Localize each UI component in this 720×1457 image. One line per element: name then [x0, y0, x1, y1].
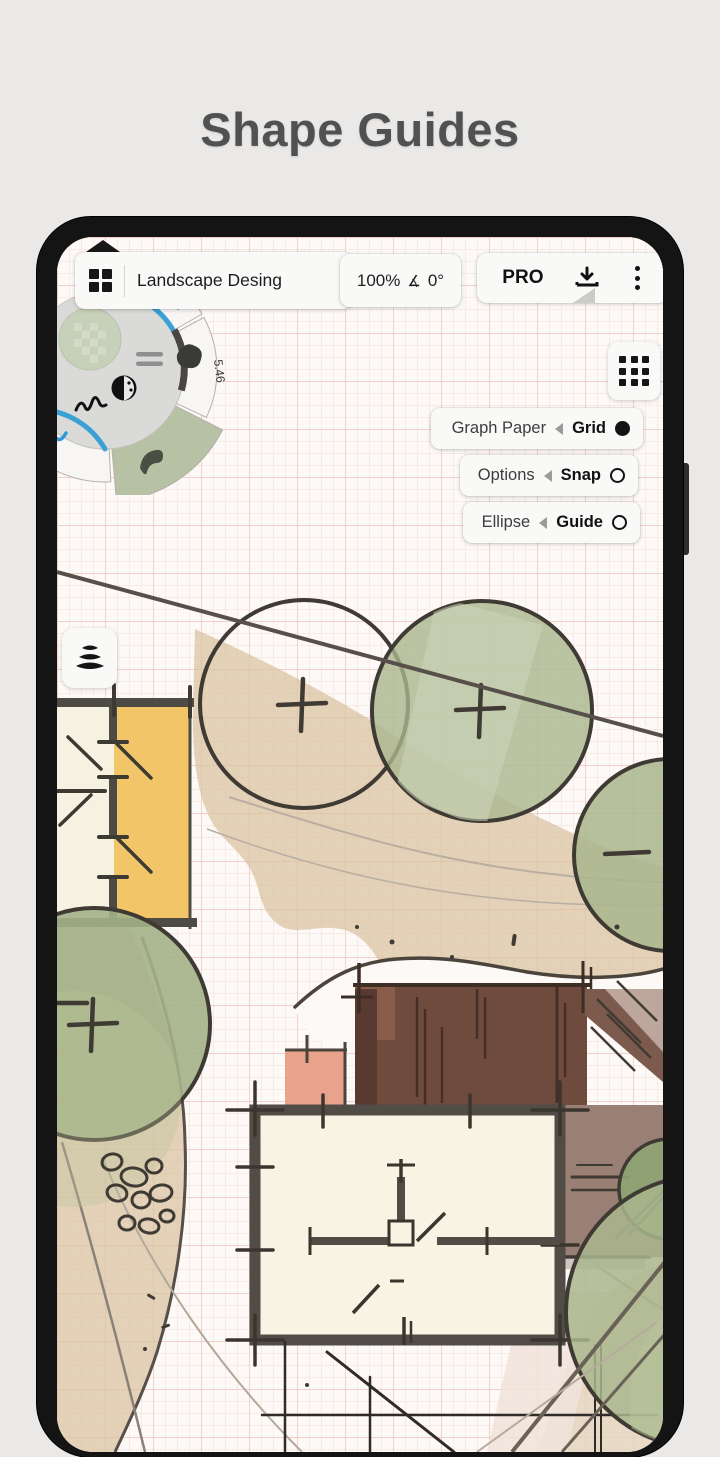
layers-icon: [70, 640, 110, 676]
angle-icon: ∡: [407, 272, 420, 290]
popup-label: Graph Paper: [452, 419, 546, 438]
popup-graph-paper[interactable]: Graph Paper Grid: [431, 408, 643, 449]
popup-label: Ellipse: [482, 513, 531, 532]
precision-grid-icon: [619, 356, 649, 386]
pro-button[interactable]: PRO: [502, 267, 543, 289]
chevron-left-icon: [539, 517, 547, 529]
toolbar-main: Landscape Desing: [75, 252, 353, 309]
phone-frame: 78.8 5.46 78.8 Landscape Desing 100% ∡ 0…: [37, 217, 683, 1457]
layers-button[interactable]: [62, 628, 117, 688]
chevron-left-icon: [555, 423, 563, 435]
app-store-screenshot: { "page": { "title": "Shape Guides", "ba…: [0, 0, 720, 1440]
contrast-icon[interactable]: [112, 376, 137, 401]
rotation-value: 0°: [428, 271, 444, 291]
kebab-menu-icon[interactable]: [631, 262, 644, 294]
grid-toggle[interactable]: [615, 421, 630, 436]
page-title: Shape Guides: [0, 102, 720, 157]
toolbar-resize-notch: [573, 288, 595, 303]
zoom-level: 100%: [357, 271, 400, 291]
toolbar-divider: [124, 265, 125, 297]
zoom-rotation-indicator[interactable]: 100% ∡ 0°: [340, 254, 461, 307]
wheel-label-right: 5.46: [211, 359, 228, 384]
popup-label: Options: [478, 466, 535, 485]
download-icon[interactable]: [574, 266, 600, 290]
popup-value: Guide: [556, 513, 603, 532]
popup-value: Grid: [572, 419, 606, 438]
project-title[interactable]: Landscape Desing: [137, 270, 282, 291]
left-building: [57, 685, 197, 929]
popup-options[interactable]: Options Snap: [460, 455, 638, 496]
toolbar-actions: PRO: [477, 253, 663, 303]
projects-grid-icon[interactable]: [89, 269, 112, 292]
snap-toggle[interactable]: [610, 468, 625, 483]
popup-ellipse[interactable]: Ellipse Guide: [463, 502, 640, 543]
phone-screen: 78.8 5.46 78.8 Landscape Desing 100% ∡ 0…: [57, 237, 663, 1452]
popup-value: Snap: [561, 466, 601, 485]
chevron-left-icon: [544, 470, 552, 482]
precision-grid-button[interactable]: [608, 342, 660, 400]
guide-toggle[interactable]: [612, 515, 627, 530]
